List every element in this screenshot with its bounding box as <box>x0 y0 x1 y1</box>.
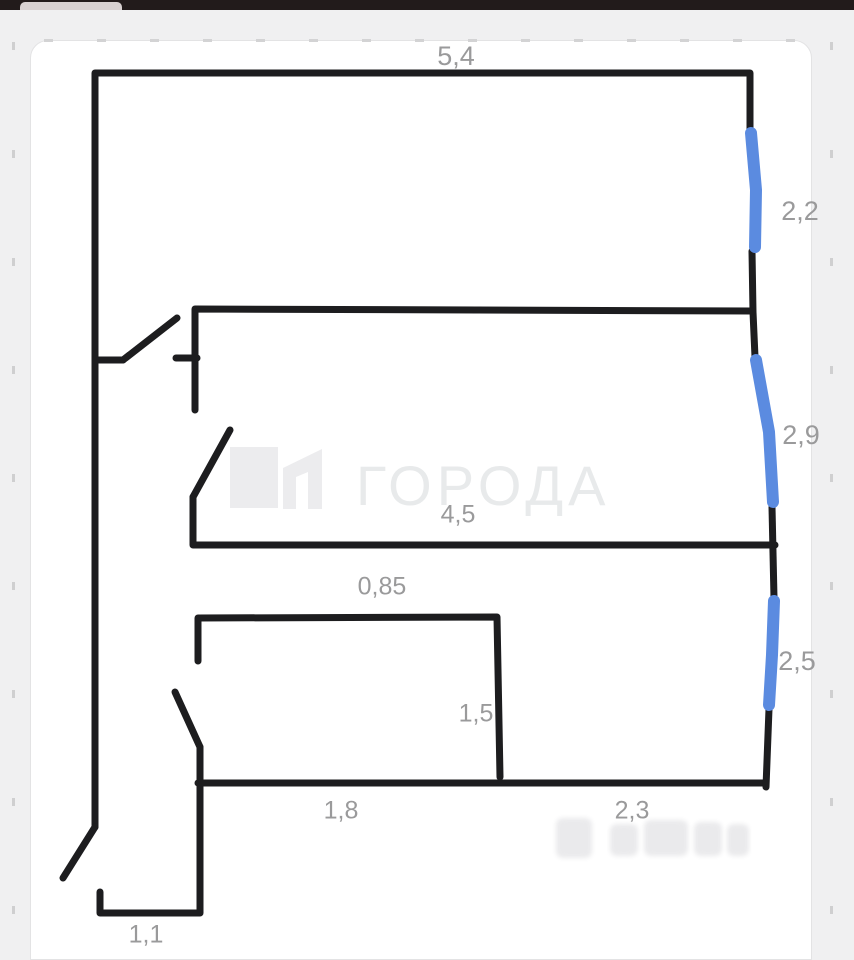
dimension-label: 5,4 <box>437 41 475 71</box>
faint-watermark-block <box>727 824 749 856</box>
dimension-label: 1,5 <box>459 700 494 728</box>
wall-segment <box>95 73 750 827</box>
top-tab-remnant <box>20 2 122 10</box>
dimension-label: 1,8 <box>324 797 359 825</box>
faint-watermark-block <box>556 818 592 858</box>
dimension-label: 2,2 <box>781 196 819 226</box>
wall-segment <box>752 251 755 357</box>
top-status-bar <box>0 0 854 10</box>
window-marker <box>756 360 773 502</box>
dimension-label: 0,85 <box>358 573 407 601</box>
faint-watermark-block <box>694 822 722 856</box>
wall-segment <box>63 827 95 878</box>
watermark-logo-glyph <box>283 449 322 509</box>
faint-watermark-block <box>610 824 638 856</box>
watermark-logo-square <box>230 447 278 508</box>
wall-segment <box>193 430 230 497</box>
faint-watermark-block <box>644 820 688 856</box>
wall-segment <box>100 747 200 913</box>
wall-segment <box>123 318 177 360</box>
wall-segment <box>198 617 500 777</box>
wall-segment <box>195 309 752 410</box>
dimension-label: 4,5 <box>441 501 476 529</box>
window-marker <box>751 133 756 247</box>
dimension-label: 2,5 <box>778 646 816 676</box>
wall-segment <box>766 709 769 787</box>
page: { "header": { "bar_color": "#221b1b", "t… <box>0 0 854 960</box>
wall-segment <box>193 497 775 545</box>
window-marker <box>769 601 774 705</box>
dimension-label: 1,1 <box>129 921 164 949</box>
wall-segment <box>175 692 200 747</box>
floorplan-drawing: 5,42,22,94,50,852,51,51,82,31,1 <box>0 0 854 960</box>
wall-segment <box>772 507 774 598</box>
dimension-label: 2,9 <box>782 420 820 450</box>
dimension-label: 2,3 <box>615 797 650 825</box>
